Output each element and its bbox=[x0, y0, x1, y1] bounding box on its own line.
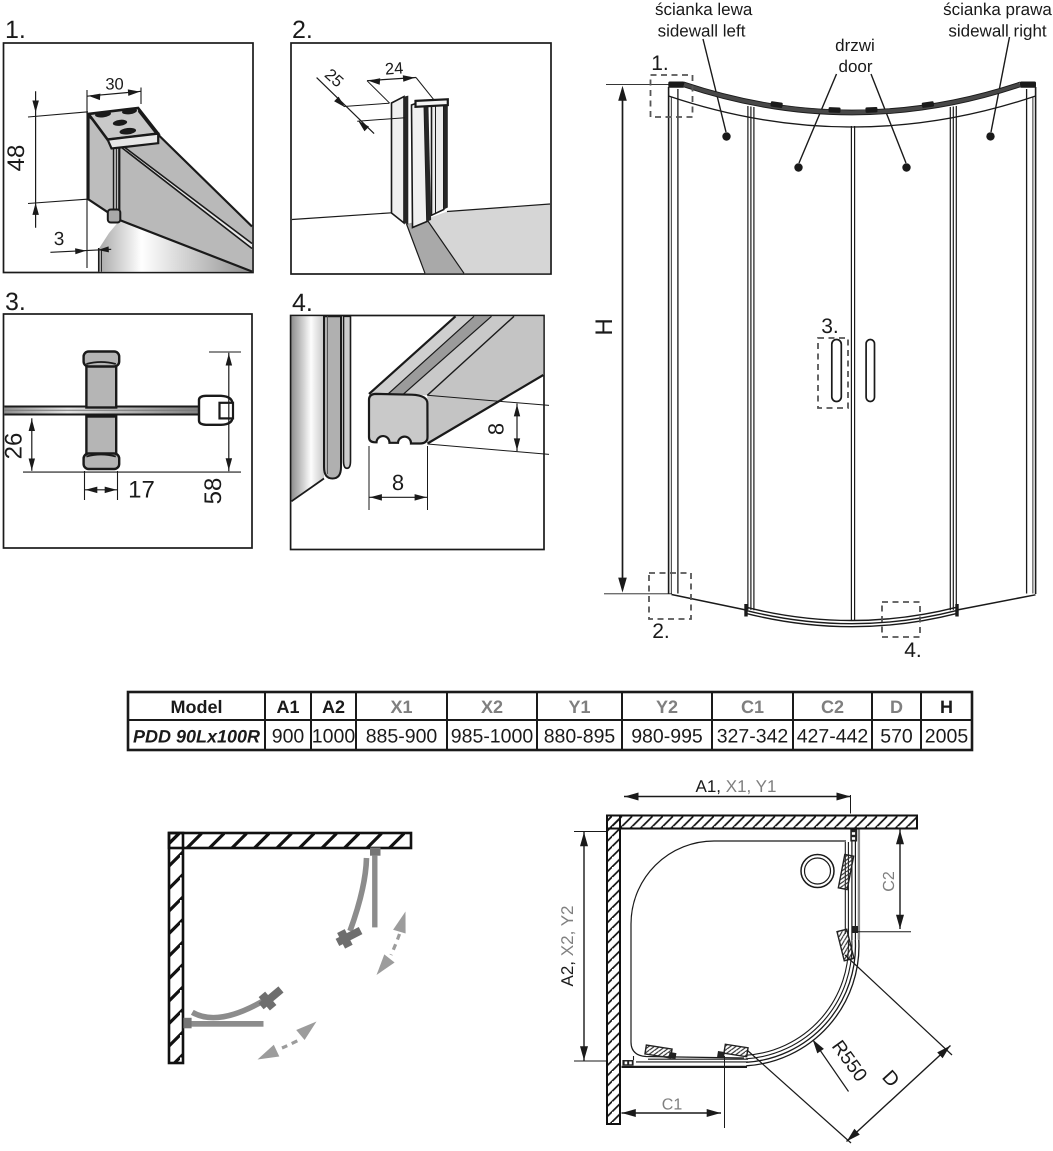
svg-text:X1: X1 bbox=[390, 697, 412, 717]
svg-text:A1, X1, Y1: A1, X1, Y1 bbox=[696, 777, 777, 796]
svg-text:4.: 4. bbox=[292, 289, 313, 317]
svg-text:ścianka prawa: ścianka prawa bbox=[943, 0, 1052, 19]
svg-text:Y1: Y1 bbox=[568, 697, 590, 717]
svg-text:sidewall left: sidewall left bbox=[658, 22, 746, 41]
svg-text:A2, X2, Y2: A2, X2, Y2 bbox=[558, 906, 577, 987]
svg-text:C1: C1 bbox=[741, 697, 764, 717]
svg-text:3.: 3. bbox=[821, 315, 839, 338]
svg-text:58: 58 bbox=[200, 478, 227, 505]
svg-text:C1: C1 bbox=[662, 1097, 683, 1114]
svg-text:2.: 2. bbox=[292, 16, 313, 44]
svg-text:1000: 1000 bbox=[312, 726, 356, 748]
svg-text:880-895: 880-895 bbox=[544, 726, 616, 748]
svg-text:PDD 90Lx100R: PDD 90Lx100R bbox=[133, 727, 260, 747]
svg-text:2005: 2005 bbox=[925, 726, 969, 748]
svg-text:sidewall right: sidewall right bbox=[948, 22, 1047, 41]
svg-text:570: 570 bbox=[880, 726, 913, 748]
svg-text:1.: 1. bbox=[5, 16, 26, 44]
svg-text:2.: 2. bbox=[652, 620, 670, 643]
svg-text:30: 30 bbox=[105, 76, 123, 94]
svg-text:327-342: 327-342 bbox=[717, 726, 789, 748]
svg-text:427-442: 427-442 bbox=[797, 726, 869, 748]
svg-text:8: 8 bbox=[392, 470, 404, 495]
svg-text:48: 48 bbox=[3, 145, 30, 172]
svg-text:1.: 1. bbox=[651, 52, 669, 75]
svg-text:26: 26 bbox=[1, 433, 28, 460]
svg-text:A2: A2 bbox=[322, 697, 345, 717]
svg-text:885-900: 885-900 bbox=[366, 726, 438, 748]
svg-text:H: H bbox=[940, 697, 953, 717]
svg-text:17: 17 bbox=[128, 477, 155, 504]
svg-text:Model: Model bbox=[171, 697, 223, 717]
svg-text:Y2: Y2 bbox=[656, 697, 678, 717]
svg-text:3: 3 bbox=[54, 229, 65, 250]
svg-text:900: 900 bbox=[272, 726, 305, 748]
svg-text:door: door bbox=[838, 57, 872, 76]
svg-text:980-995: 980-995 bbox=[631, 726, 703, 748]
svg-text:4.: 4. bbox=[904, 639, 922, 662]
svg-text:8: 8 bbox=[484, 423, 509, 435]
svg-text:X2: X2 bbox=[481, 697, 503, 717]
svg-text:ścianka lewa: ścianka lewa bbox=[655, 0, 753, 19]
svg-text:3.: 3. bbox=[5, 288, 26, 316]
svg-text:D: D bbox=[890, 697, 903, 717]
svg-text:A1: A1 bbox=[276, 697, 299, 717]
svg-text:24: 24 bbox=[384, 59, 404, 78]
svg-text:H: H bbox=[591, 318, 618, 335]
svg-text:C2: C2 bbox=[821, 697, 844, 717]
svg-text:985-1000: 985-1000 bbox=[451, 726, 534, 748]
svg-text:C2: C2 bbox=[881, 871, 898, 892]
svg-text:drzwi: drzwi bbox=[835, 36, 875, 55]
